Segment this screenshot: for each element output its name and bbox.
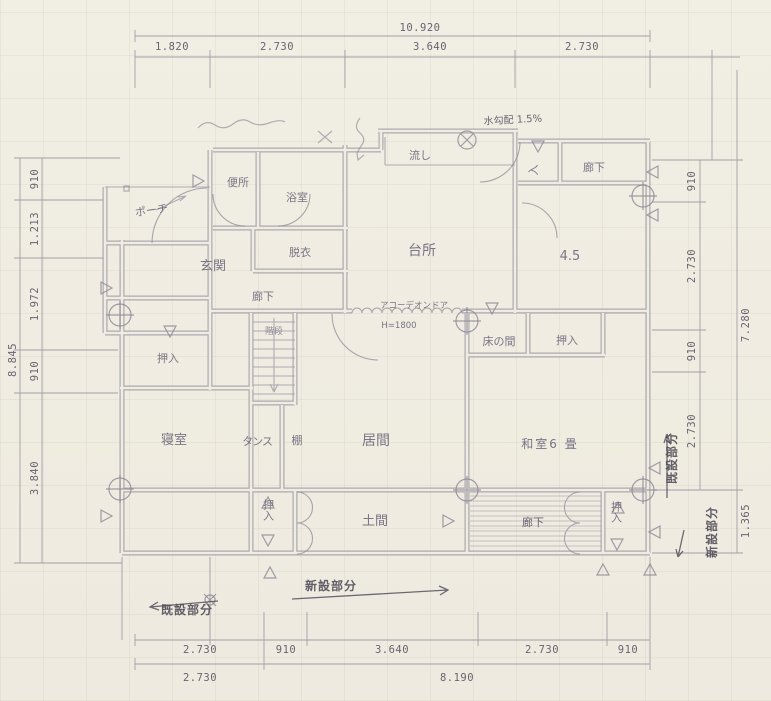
room-label-porch: ポーチ <box>134 202 168 219</box>
room-label-ima: 居間 <box>362 433 390 449</box>
dim-left-total: 8.845 <box>7 343 19 377</box>
room-label-oshiire-bottom: 押入 <box>262 498 275 521</box>
room-label-bath: 浴室 <box>286 190 308 204</box>
room-label-doma: 土間 <box>362 514 388 529</box>
note-accordion-door: アコーデオンドア <box>380 300 448 311</box>
dim-bottom-sub-1: 2.730 <box>183 672 217 684</box>
dim-left-4: 910 <box>29 361 41 381</box>
room-label-rouka-bottom: 廊下 <box>522 515 544 529</box>
vent-fan-cross <box>461 134 473 146</box>
dim-top-total: 10.920 <box>400 22 441 34</box>
room-label-oshiire-toko: 押入 <box>556 333 578 347</box>
dim-top-3: 3.640 <box>413 41 447 53</box>
dim-top-1: 1.820 <box>155 41 189 53</box>
room-label-sink: 流し <box>409 148 431 162</box>
room-label-shinshitsu: 寝室 <box>161 432 187 448</box>
dim-right-2: 2.730 <box>686 249 698 283</box>
dim-right-extra: 1.365 <box>740 504 752 538</box>
dim-left-3: 1.972 <box>29 287 41 321</box>
room-label-kitchen: 台所 <box>408 243 436 259</box>
dim-top-2: 2.730 <box>260 41 294 53</box>
dim-bottom-sub-2: 8.190 <box>440 672 474 684</box>
dim-bottom-2: 910 <box>276 644 296 656</box>
room-label-tokonoma: 床の間 <box>483 334 516 348</box>
dim-top-4: 2.730 <box>565 41 599 53</box>
dim-bottom-4: 2.730 <box>525 644 559 656</box>
dim-right-4: 2.730 <box>686 414 698 448</box>
dim-right-3: 910 <box>686 341 698 361</box>
dim-right-total: 7.280 <box>740 308 752 342</box>
room-label-genkan: 玄関 <box>200 259 226 274</box>
opening-triangle-markers <box>101 141 660 578</box>
floor-plan-drawing: 10.920 1.820 2.730 3.640 2.730 8.845 910… <box>0 0 771 701</box>
note-accordion-height: H=1800 <box>381 321 416 331</box>
room-label-rouka-center: 廊下 <box>252 289 274 303</box>
dim-right-1: 910 <box>686 171 698 191</box>
note-existing-part-right: 既設部分 <box>664 432 679 484</box>
room-label-kaidan: 階段 <box>265 325 283 337</box>
dim-bottom-5: 910 <box>618 644 638 656</box>
room-label-entry: 入 <box>527 165 540 176</box>
room-label-tana: 棚 <box>292 433 303 447</box>
note-existing-part-bottom: 既設部分 <box>161 602 213 617</box>
note-new-part-bottom: 新設部分 <box>305 578 357 593</box>
dim-left-2: 1.213 <box>29 212 41 246</box>
room-label-datsui: 脱衣 <box>289 245 311 259</box>
note-new-part-right: 新設部分 <box>704 506 719 558</box>
dim-left-5: 3.840 <box>29 461 41 495</box>
room-label-oshiire-br: 押入 <box>610 500 623 523</box>
room-label-rouka-top: 廊下 <box>583 160 605 174</box>
room-label-yojohan: 4.5 <box>560 249 581 264</box>
level-markers <box>106 131 657 606</box>
note-slope: 水勾配 1.5% <box>483 111 542 127</box>
room-label-toilet: 便所 <box>227 176 249 189</box>
floor-plan-sheet: 10.920 1.820 2.730 3.640 2.730 8.845 910… <box>0 0 771 701</box>
room-label-tansu: タンス <box>242 435 272 448</box>
dim-left-1: 910 <box>29 169 41 189</box>
room-label-washitsu: 和室6 畳 <box>521 436 578 451</box>
dim-bottom-3: 3.640 <box>375 644 409 656</box>
dim-bottom-1: 2.730 <box>183 644 217 656</box>
room-label-oshiire-left: 押入 <box>157 351 179 365</box>
